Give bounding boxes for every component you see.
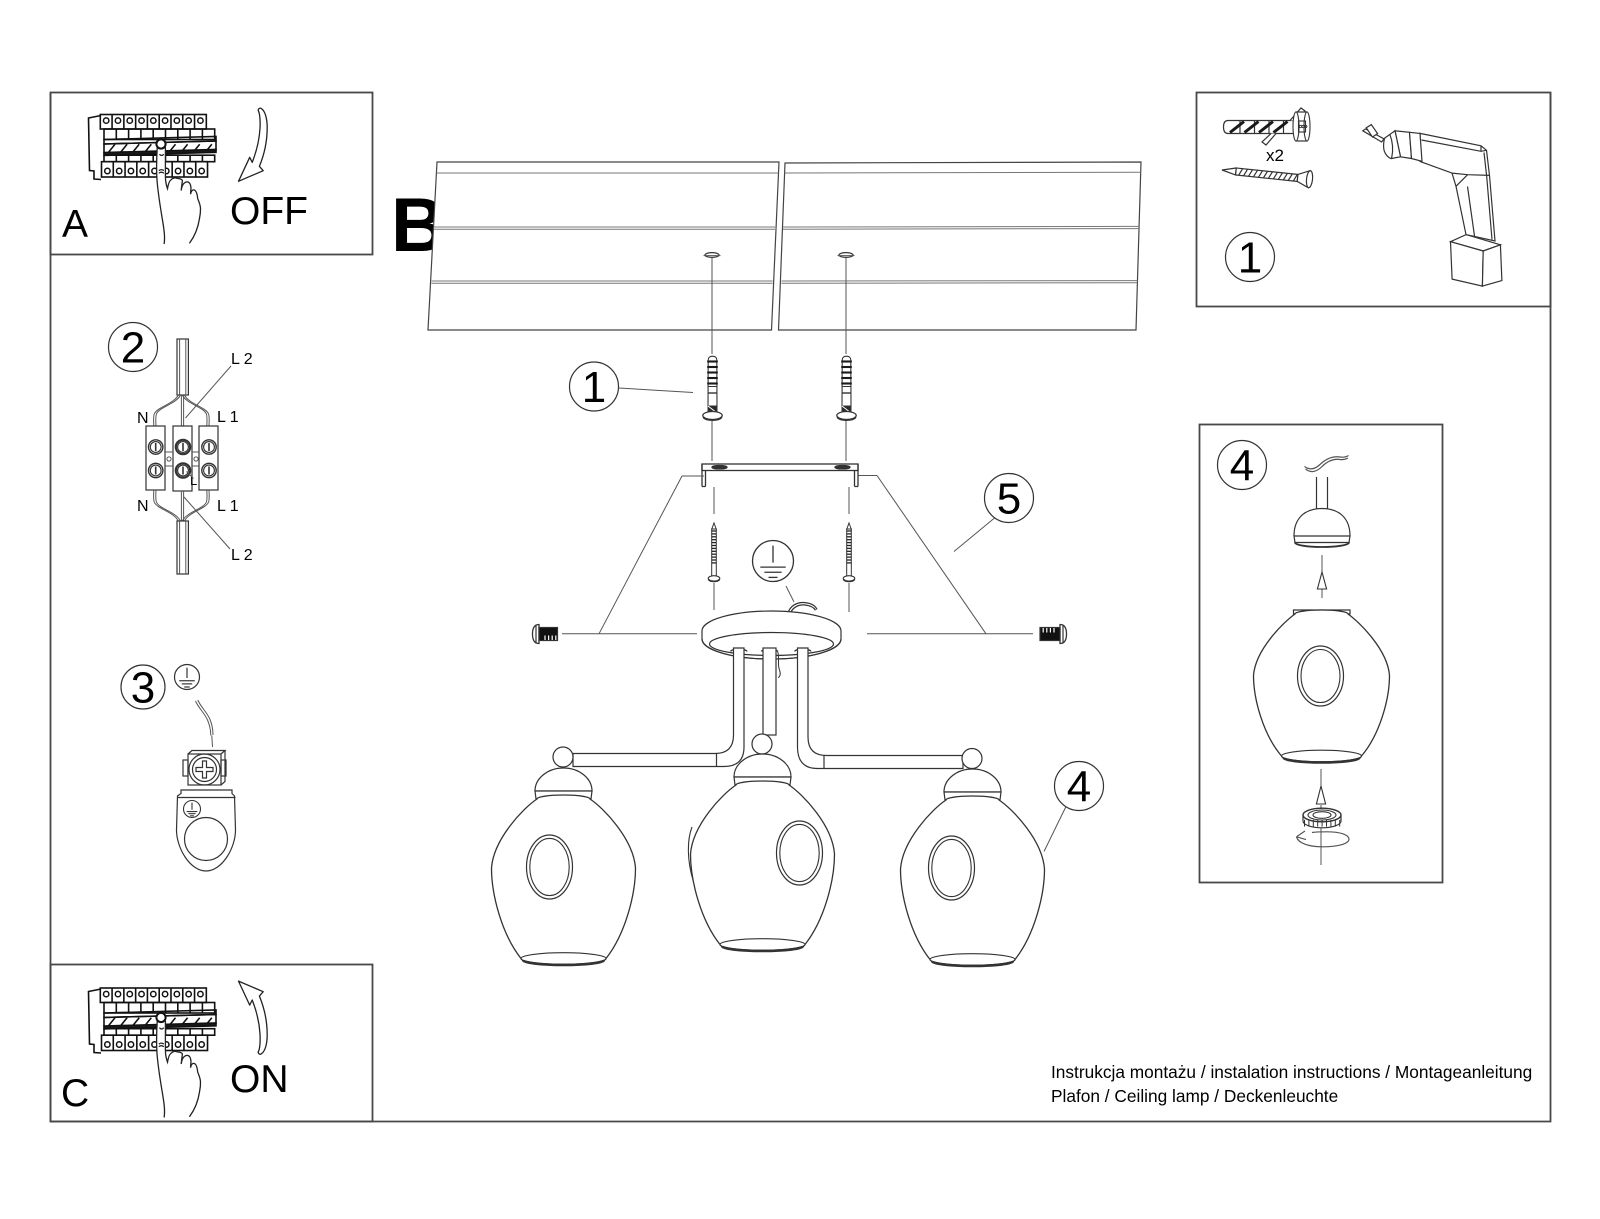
svg-text:x2: x2: [1266, 146, 1284, 165]
svg-text:L: L: [190, 473, 197, 488]
svg-text:OFF: OFF: [230, 190, 308, 233]
svg-text:5: 5: [997, 475, 1021, 524]
svg-text:N: N: [137, 498, 149, 515]
svg-text:L 1: L 1: [217, 498, 239, 515]
svg-text:L 2: L 2: [231, 351, 253, 368]
svg-text:Instrukcja montażu / instalati: Instrukcja montażu / instalation instruc…: [1051, 1062, 1532, 1082]
svg-text:C: C: [61, 1072, 89, 1115]
svg-text:1: 1: [1238, 234, 1262, 283]
svg-text:1: 1: [582, 363, 606, 412]
svg-text:4: 4: [1230, 442, 1254, 491]
svg-text:N: N: [137, 410, 149, 427]
svg-text:3: 3: [131, 664, 155, 713]
svg-text:A: A: [62, 203, 88, 246]
svg-text:L 1: L 1: [217, 409, 239, 426]
svg-text:ON: ON: [230, 1058, 289, 1101]
svg-text:L 2: L 2: [231, 547, 253, 564]
svg-text:Plafon / Ceiling lamp / Decken: Plafon / Ceiling lamp / Deckenleuchte: [1051, 1086, 1338, 1106]
svg-text:2: 2: [121, 324, 145, 373]
svg-text:4: 4: [1067, 763, 1091, 812]
